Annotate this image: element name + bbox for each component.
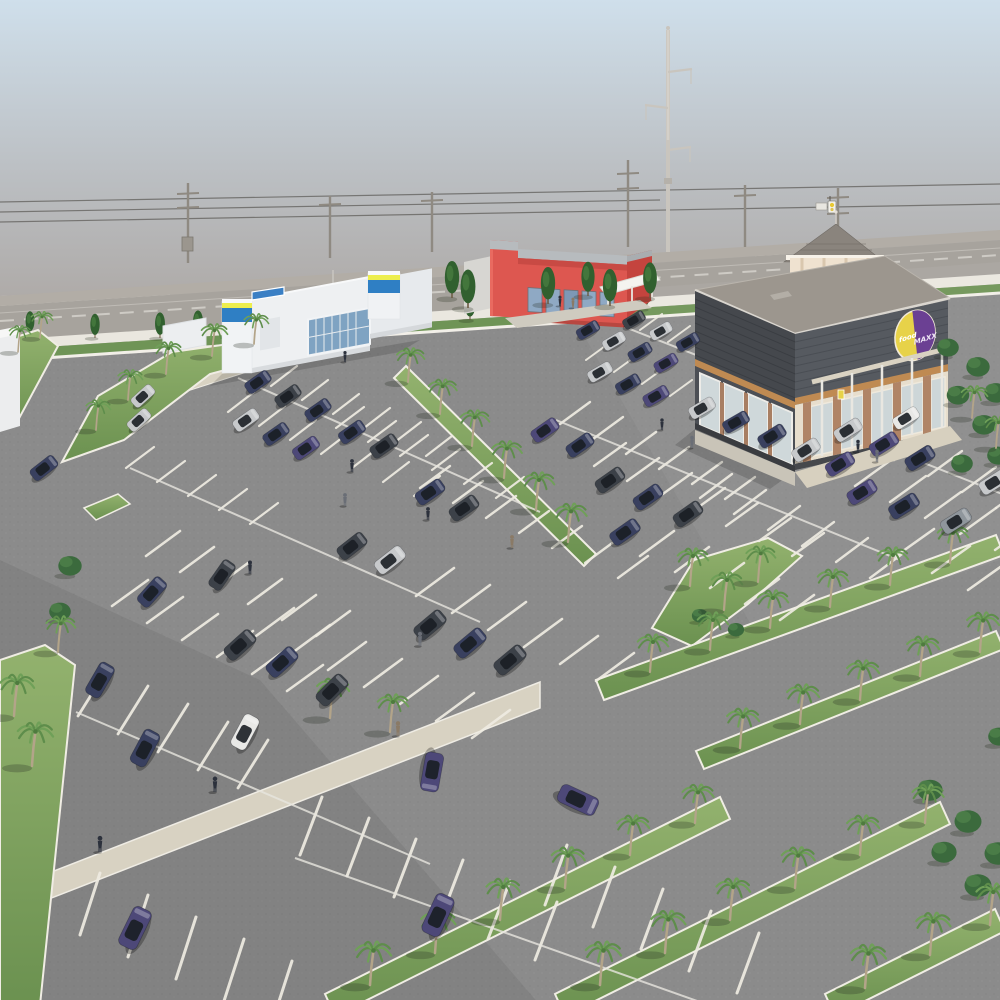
palm-crown [991, 890, 995, 894]
palm-crown [741, 714, 745, 718]
palm-crown [15, 681, 19, 685]
palm-crown [691, 554, 695, 558]
palm-shadow [773, 722, 800, 729]
palm-crown [41, 316, 44, 319]
palm-shadow [570, 983, 600, 991]
palm-crown [59, 622, 63, 626]
white-pillar [0, 330, 20, 432]
palm-shadow [479, 477, 504, 484]
palm-shadow [733, 581, 758, 588]
pole-collar [664, 178, 672, 184]
person-head [571, 298, 574, 301]
palm-crown [129, 374, 132, 377]
tree-shadow [452, 306, 474, 312]
tree-shadow [532, 302, 553, 308]
palm-crown [801, 690, 805, 694]
tree-foliage-light [605, 274, 612, 290]
palm-shadow [144, 373, 166, 379]
tree-foliage-light [986, 384, 999, 394]
palm-shadow [603, 853, 630, 860]
person-head [343, 351, 346, 354]
palm-shadow [961, 923, 990, 931]
palm-shadow [190, 355, 212, 361]
palm-shadow [864, 584, 890, 591]
palm-shadow [75, 429, 96, 435]
palm-crown [973, 391, 976, 394]
tree-foliage-light [948, 387, 961, 397]
palm-shadow [767, 886, 795, 894]
tree-foliage-light [50, 603, 62, 613]
palm-crown [931, 919, 935, 923]
palm-shadow [537, 886, 565, 894]
palm-shadow [701, 918, 730, 926]
palm-crown [391, 700, 395, 704]
palm-shadow [901, 953, 930, 961]
tree-foliage-light [543, 272, 550, 288]
pole-crossarm [177, 207, 199, 208]
palm-shadow [835, 986, 865, 994]
wall-panel [260, 317, 280, 351]
person-head [660, 418, 663, 421]
palm-crown [371, 948, 376, 953]
palm-crown [631, 821, 635, 825]
pole-crossarm [734, 195, 756, 196]
palm-crown [505, 447, 509, 451]
palm-shadow [33, 651, 58, 658]
palm-crown [666, 917, 670, 921]
tower-yellow-band [368, 275, 400, 280]
person-head [856, 440, 860, 444]
tower-blue-panel [222, 308, 252, 322]
palm-shadow [303, 716, 330, 723]
tree-foliage-light [583, 266, 589, 280]
tree-foliage-light [968, 358, 981, 368]
tree-foliage-light [966, 875, 981, 887]
palm-crown [796, 853, 800, 857]
tree-foliage-light [60, 557, 73, 567]
palm-shadow [22, 337, 40, 342]
palm-shadow [974, 447, 996, 453]
palm-crown [569, 509, 573, 513]
tree-foliage-light [974, 416, 987, 426]
palm-shadow [893, 674, 920, 681]
palm-crown [601, 948, 606, 953]
palm-crown [771, 596, 775, 600]
tree-shadow [436, 296, 457, 302]
palm-shadow [950, 417, 972, 423]
palm-shadow [0, 351, 18, 356]
palm-crown [19, 330, 22, 333]
palm-crown [725, 578, 729, 582]
palm-crown [409, 353, 413, 357]
pole-crossarm [617, 188, 639, 189]
palm-shadow [924, 562, 950, 569]
palm-crown [33, 729, 38, 734]
pole-equipment-box [182, 237, 193, 251]
tree-shadow [459, 319, 474, 323]
tree-foliage-light [462, 274, 469, 290]
palm-crown [926, 790, 930, 794]
palm-crown [759, 552, 763, 556]
palm-crown [167, 347, 170, 350]
scene-canvas: Aerial 3D architectural rendering of a r… [0, 0, 1000, 1000]
tree-foliage-light [933, 842, 947, 853]
palm-shadow [471, 918, 500, 926]
palm-shadow [953, 650, 980, 657]
signal-sign-panel [816, 203, 827, 210]
palm-shadow [636, 951, 665, 959]
rendered-scene: Aerial 3D architectural rendering of a r… [0, 0, 1000, 1000]
entry-sign [838, 390, 844, 399]
tree-foliage-light [938, 339, 950, 349]
signal-yellow-light [830, 203, 834, 207]
palm-shadow [385, 381, 408, 387]
palm-crown [831, 575, 835, 579]
palm-shadow [416, 413, 440, 419]
palm-crown [97, 404, 100, 407]
brick-column [923, 375, 931, 436]
palm-crown [566, 853, 570, 857]
pole-top [666, 26, 670, 30]
tower-blue-panel [368, 280, 400, 293]
pole-crossarm [177, 193, 199, 194]
person-head [350, 459, 354, 463]
palm-crown [866, 951, 871, 956]
palm-shadow [510, 509, 536, 516]
palm-shadow [668, 821, 695, 828]
palm-shadow [447, 445, 472, 452]
person-head [558, 296, 561, 299]
person-head [396, 721, 400, 725]
person-head [98, 836, 103, 841]
signal-lower-light [830, 208, 833, 211]
palm-crown [651, 640, 655, 644]
palm-crown [473, 416, 477, 420]
finial-ball [834, 210, 837, 213]
tree-foliage-light [645, 267, 652, 282]
person-head [690, 436, 694, 440]
palm-crown [921, 642, 925, 646]
palm-crown [213, 329, 216, 332]
tower-wall [490, 240, 518, 318]
palm-shadow [833, 853, 860, 860]
palm-shadow [664, 585, 690, 592]
brick-column [833, 395, 841, 456]
tower-parapet [490, 240, 518, 251]
palm-crown [501, 885, 505, 889]
tree-foliage-light [92, 317, 96, 327]
tower-cap [222, 299, 252, 303]
tree-foliage-light [156, 316, 161, 327]
palm-shadow [713, 746, 740, 753]
palm-shadow [364, 731, 390, 738]
palm-crown [891, 553, 895, 557]
tree-foliage-light [956, 811, 971, 823]
person-head [248, 560, 252, 564]
palm-shadow [233, 343, 254, 349]
palm-crown [537, 478, 541, 482]
tree-shadow [574, 295, 593, 300]
tree-foliage-light [729, 623, 738, 630]
tree-foliage-light [447, 266, 454, 282]
storefront-window [528, 288, 542, 313]
palm-crown [255, 318, 258, 321]
palm-shadow [744, 627, 770, 634]
person-head [213, 777, 218, 782]
tower-yellow-band [222, 303, 252, 308]
tree-foliage-light [27, 314, 31, 324]
palm-crown [861, 821, 865, 825]
palm-shadow [833, 698, 860, 705]
palm-crown [861, 666, 865, 670]
palm-crown [731, 885, 735, 889]
tree-shadow [635, 297, 655, 303]
tree-shadow [594, 304, 615, 310]
palm-crown [441, 385, 445, 389]
tree-shadow [85, 337, 99, 341]
palm-shadow [541, 540, 568, 547]
tree-foliage-light [952, 455, 964, 465]
pole-crossarm [617, 173, 639, 174]
person-head [418, 632, 422, 636]
person-head [510, 535, 514, 539]
palm-crown [696, 790, 700, 794]
palm-shadow [898, 821, 925, 828]
red-tower [490, 240, 518, 318]
palm-shadow [2, 764, 32, 772]
palm-crown [981, 618, 985, 622]
tree-shadow [149, 337, 163, 341]
pole-crossarm [319, 204, 341, 205]
tower-edge-light [490, 249, 493, 316]
palm-crown [711, 618, 715, 622]
tower-cap [368, 271, 400, 275]
left-edge-structure [0, 326, 20, 432]
palm-shadow [804, 606, 830, 613]
person-head [426, 507, 430, 511]
palm-shadow [406, 951, 435, 959]
person-head [343, 493, 347, 497]
palm-shadow [684, 649, 710, 656]
palm-shadow [340, 983, 370, 991]
pole-crossarm [421, 200, 443, 201]
palm-shadow [624, 671, 650, 678]
palm-shadow [107, 399, 128, 405]
person-head [875, 450, 879, 454]
brick-column [863, 388, 871, 449]
